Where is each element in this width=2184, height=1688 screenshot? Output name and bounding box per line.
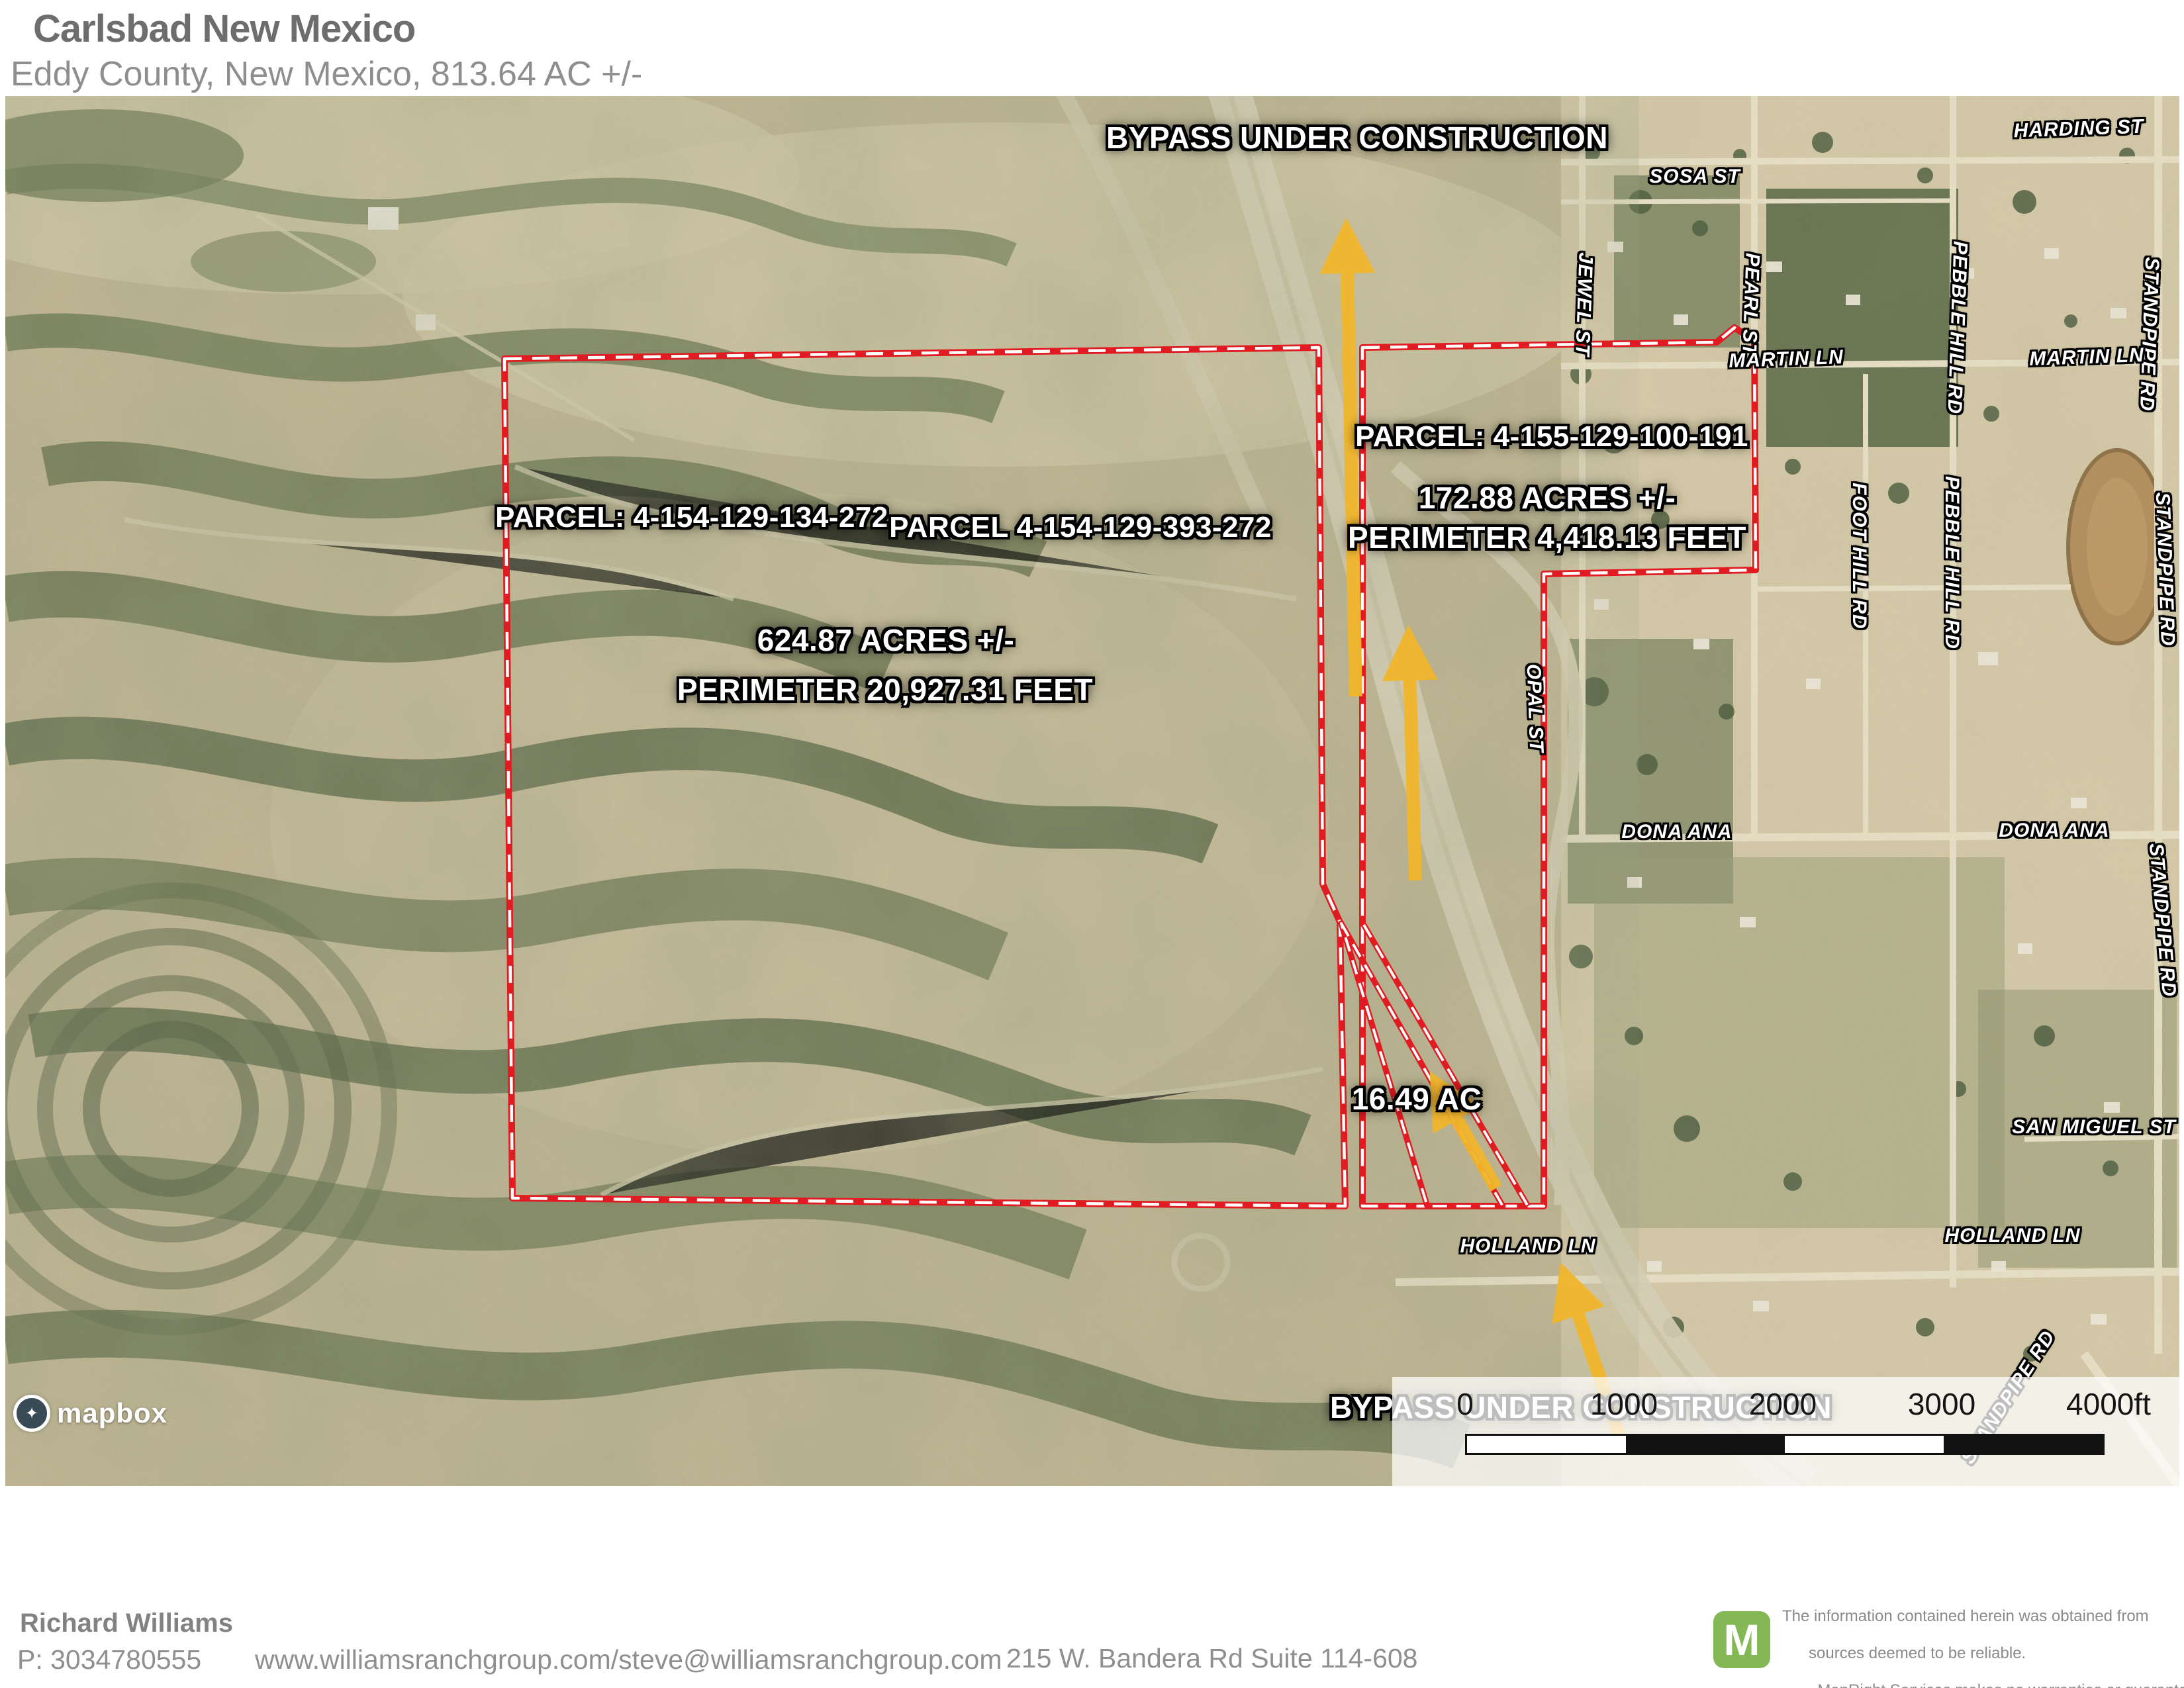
street-label: SOSA ST (1649, 165, 1740, 188)
scale-tick: 4000ft (2066, 1386, 2151, 1422)
street-label: PEARL ST (1737, 253, 1763, 357)
satellite-imagery (5, 96, 2179, 1486)
page-title: Carlsbad New Mexico (33, 7, 415, 51)
parcel-4-acreage-label: 16.49 AC (1352, 1081, 1482, 1117)
street-label: DONA ANA (1999, 820, 2109, 842)
street-label: PEBBLE HILL RD (1940, 476, 1963, 649)
page-subtitle: Eddy County, New Mexico, 813.64 AC +/- (11, 54, 642, 94)
scale-tick: 1000 (1590, 1386, 1658, 1422)
agent-address: 215 W. Bandera Rd Suite 114-608 (1006, 1643, 1418, 1674)
parcel-3-id-label: PARCEL: 4-155-129-100-191 (1355, 420, 1748, 453)
scale-tick: 3000 (1908, 1386, 1975, 1422)
parcel-1-acreage-label: 624.87 ACRES +/- (757, 622, 1015, 658)
parcel-3-perimeter-label: PERIMETER 4,418.13 FEET (1348, 520, 1746, 555)
disclaimer-text: The information contained herein was obt… (1782, 1607, 2184, 1688)
parcel-3-acreage-label: 172.88 ACRES +/- (1419, 480, 1676, 516)
parcel-2-id-label: PARCEL 4-154-129-393-272 (889, 511, 1272, 544)
street-label: DONA ANA (1621, 821, 1732, 843)
agent-website[interactable]: www.williamsranchgroup.com/steve@william… (255, 1644, 1002, 1675)
mapright-logo: M (1713, 1611, 1770, 1668)
scale-bar-segments (1465, 1434, 2105, 1455)
scale-segment (1944, 1436, 2103, 1453)
listing-map-page: Carlsbad New Mexico Eddy County, New Mex… (0, 0, 2184, 1688)
street-label: HARDING ST (2013, 116, 2144, 143)
bypass-arrow-middle (1409, 639, 1415, 880)
scale-segment (1467, 1436, 1626, 1453)
street-label: SAN MIGUEL ST (2012, 1116, 2175, 1139)
disclaimer-line: sources deemed to be reliable. (1809, 1644, 2026, 1662)
scale-segment (1626, 1436, 1785, 1453)
parcel-1-id-label: PARCEL: 4-154-129-134-272 (495, 501, 888, 534)
agent-name: Richard Williams (20, 1609, 233, 1638)
scale-tick: 0 (1456, 1386, 1474, 1422)
disclaimer-line: MapRight Services makes no warranties or… (1809, 1681, 2184, 1688)
disclaimer-line: The information contained herein was obt… (1782, 1607, 2149, 1625)
agent-phone: P: 3034780555 (17, 1644, 201, 1675)
street-label: JEWEL ST (1570, 252, 1596, 357)
parcel-1-perimeter-label: PERIMETER 20,927.31 FEET (677, 672, 1093, 708)
street-label: HOLLAND LN (1460, 1235, 1596, 1258)
map-grain (5, 96, 2179, 1486)
street-label: FOOT HILL RD (1848, 483, 1870, 629)
street-label: HOLLAND LN (1945, 1225, 2081, 1247)
map-legend: Direction Boundary (0, 1489, 2184, 1536)
street-label: MARTIN LN (2029, 344, 2145, 371)
bypass-arrow-north (1347, 232, 1356, 696)
mapbox-attribution[interactable]: ✦ mapbox (13, 1395, 167, 1432)
street-label: MARTIN LN (1729, 346, 1844, 373)
scale-tick: 2000 (1749, 1386, 1817, 1422)
street-label: OPAL ST (1522, 663, 1548, 753)
bypass-label-top: BYPASS UNDER CONSTRUCTION (1106, 120, 1608, 156)
mapbox-logo-icon: ✦ (13, 1395, 50, 1432)
scale-segment (1785, 1436, 1944, 1453)
scale-bar: 0 1000 2000 3000 4000ft (1392, 1377, 2179, 1486)
mapbox-wordmark: mapbox (57, 1397, 167, 1429)
map-canvas[interactable]: BYPASS UNDER CONSTRUCTION PARCEL: 4-154-… (5, 96, 2179, 1486)
